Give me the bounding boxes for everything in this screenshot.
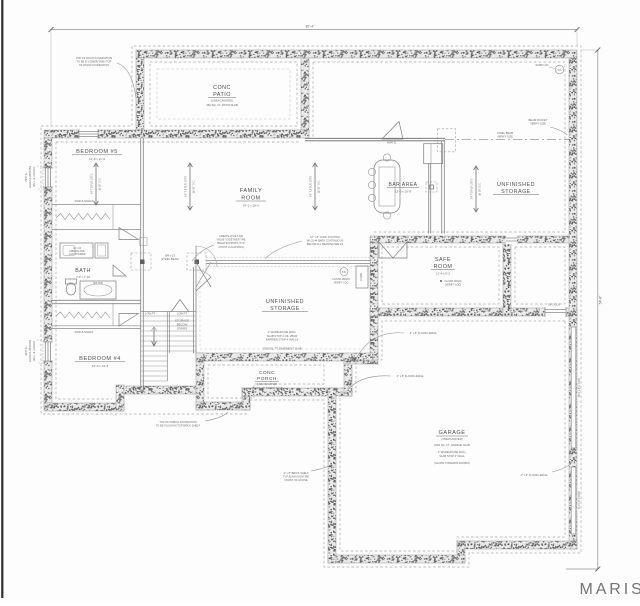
svg-text:4" x 8" FLOOR LEDGE: 4" x 8" FLOOR LEDGE <box>410 331 437 335</box>
svg-text:TO BE 8" LOWER THAN TOP: TO BE 8" LOWER THAN TOP <box>77 60 112 64</box>
svg-text:WELL & LADDER: WELL & LADDER <box>33 167 36 187</box>
svg-text:352 SQ. FT. PATIO SLAB: 352 SQ. FT. PATIO SLAB <box>206 103 238 107</box>
svg-text:STEEL BEAM: STEEL BEAM <box>161 257 179 261</box>
svg-text:STORAGE: STORAGE <box>175 319 190 323</box>
svg-text:2847 SL: 2847 SL <box>25 172 28 182</box>
svg-text:F.D.: F.D. <box>342 272 346 274</box>
svg-text:VERIFY SIZE: VERIFY SIZE <box>497 135 513 139</box>
svg-text:(VERIFY LOC): (VERIFY LOC) <box>445 283 462 286</box>
svg-text:ROOM: ROOM <box>241 196 260 202</box>
svg-text:82'-4": 82'-4" <box>306 25 315 29</box>
svg-text:SUMP LOC: SUMP LOC <box>535 64 548 67</box>
svg-text:FRONT OF HOUSE: FRONT OF HOUSE <box>284 478 307 482</box>
svg-text:TOP OF WOOD FOUNDATION: TOP OF WOOD FOUNDATION <box>76 56 112 60</box>
svg-text:4" x 8" FLOOR LEDGE: 4" x 8" FLOOR LEDGE <box>397 374 424 378</box>
svg-text:54'-8": 54'-8" <box>599 295 603 304</box>
svg-text:16" x 8" CONC FOOTING: 16" x 8" CONC FOOTING <box>310 235 340 239</box>
svg-text:16'-0 x 8'-0 OHD: 16'-0 x 8'-0 OHD <box>577 378 581 397</box>
svg-text:FLOOR DRAIN: FLOOR DRAIN <box>332 278 349 281</box>
svg-text:(UNEXCAVATED): (UNEXCAVATED) <box>441 437 462 441</box>
svg-text:MARIS: MARIS <box>580 581 640 598</box>
svg-text:VERIFY LOC: VERIFY LOC <box>334 281 349 284</box>
svg-text:@ 16" O.C.: @ 16" O.C. <box>316 180 320 193</box>
svg-text:FURN: FURN <box>359 273 363 281</box>
svg-text:PATIO: PATIO <box>213 92 231 98</box>
svg-text:MIT TUB: MIT TUB <box>93 282 103 285</box>
svg-text:BATH: BATH <box>75 268 90 274</box>
svg-text:BEDROOM #5: BEDROOM #5 <box>76 149 118 155</box>
svg-text:UNFINISHED: UNFINISHED <box>497 182 535 188</box>
svg-text:@ 16" O.C.: @ 16" O.C. <box>97 177 101 190</box>
svg-text:CONC: CONC <box>259 370 275 376</box>
svg-text:@ 16" O.C.: @ 16" O.C. <box>477 182 481 195</box>
svg-text:STAIRS: STAIRS <box>177 327 188 331</box>
svg-text:LOW PT: LOW PT <box>145 312 155 316</box>
svg-text:12'-0 x 13'-2: 12'-0 x 13'-2 <box>92 364 109 368</box>
svg-text:FAMILY: FAMILY <box>240 188 262 194</box>
svg-text:1094 SQ. FT. GARAGE SLAB: 1094 SQ. FT. GARAGE SLAB <box>434 443 470 447</box>
svg-text:24'-2 x 18'-0: 24'-2 x 18'-0 <box>243 204 260 208</box>
svg-text:12'-0 x 16'-8: 12'-0 x 16'-8 <box>395 190 412 194</box>
svg-text:BELOW: BELOW <box>177 323 188 327</box>
svg-text:14" TJI FLR JSTS: 14" TJI FLR JSTS <box>90 173 94 194</box>
svg-text:VERIFY SIZE: VERIFY SIZE <box>530 122 546 126</box>
svg-text:ROD & SHELF: ROD & SHELF <box>75 199 94 203</box>
svg-text:2358 SQ. FT. BASEMENT SLAB: 2358 SQ. FT. BASEMENT SLAB <box>263 347 302 351</box>
svg-text:4 POST LOCATIONS): 4 POST LOCATIONS) <box>218 245 244 249</box>
svg-text:SLAB STOP 4 OIL VBOR: SLAB STOP 4 OIL VBOR <box>267 334 297 338</box>
svg-text:PORCH: PORCH <box>257 376 277 382</box>
svg-text:4' WAREHOUSE WALL: 4' WAREHOUSE WALL <box>268 330 297 334</box>
svg-text:BELOW ALL BEARING WALLS: BELOW ALL BEARING WALLS <box>307 242 344 246</box>
svg-text:TO BE FLUSH W/ TOP BRICK SHELF: TO BE FLUSH W/ TOP BRICK SHELF <box>156 424 201 428</box>
svg-text:(UNEXCAVATED): (UNEXCAVATED) <box>257 382 278 386</box>
svg-text:7'-8 x 7'-10: 7'-8 x 7'-10 <box>76 275 91 279</box>
svg-text:@ 16" O.C.: @ 16" O.C. <box>191 180 195 193</box>
svg-text:CREATE QUIET AIR: CREATE QUIET AIR <box>219 234 243 238</box>
svg-text:STEEL BEAM: STEEL BEAM <box>497 131 513 135</box>
svg-text:2847 SL: 2847 SL <box>25 346 28 356</box>
svg-text:WELL & LADDER: WELL & LADDER <box>33 341 36 361</box>
svg-text:14" TJI FLR JSTS: 14" TJI FLR JSTS <box>470 178 474 199</box>
svg-text:9'-0 x 8'-0 OHD: 9'-0 x 8'-0 OHD <box>577 491 581 509</box>
svg-text:11'-4 x 9'-2: 11'-4 x 9'-2 <box>436 272 450 276</box>
svg-text:EGRESS WINDOW: EGRESS WINDOW <box>29 339 32 362</box>
svg-text:EGRESS WINDOW: EGRESS WINDOW <box>29 165 32 188</box>
svg-text:STORAGE: STORAGE <box>501 189 531 195</box>
svg-text:187 SQ. FT. PORCH SLAB: 187 SQ. FT. PORCH SLAB <box>251 386 283 390</box>
svg-text:BEAM POCKET: BEAM POCKET <box>529 118 548 122</box>
svg-text:4' WAREHOUSE WALL: 4' WAREHOUSE WALL <box>438 450 467 454</box>
svg-text:4" x 8" BRICK SHELF: 4" x 8" BRICK SHELF <box>283 471 309 475</box>
svg-text:ROOM: ROOM <box>434 264 453 270</box>
svg-text:BAR AREA: BAR AREA <box>388 182 417 188</box>
svg-text:BARRIER STOP 4' WALLS: BARRIER STOP 4' WALLS <box>266 338 299 342</box>
svg-text:(SLOPE TOWARDS DOORS): (SLOPE TOWARDS DOORS) <box>434 461 470 465</box>
svg-text:ROD & SHELF: ROD & SHELF <box>75 330 94 334</box>
svg-text:4" x 8" FLOOR LEDGE: 4" x 8" FLOOR LEDGE <box>521 473 548 477</box>
svg-text:BEDROOM #4: BEDROOM #4 <box>79 356 121 362</box>
svg-text:1 DR SHOWER: 1 DR SHOWER <box>69 253 86 256</box>
svg-text:VALVE TOGETHER THE: VALVE TOGETHER THE <box>217 238 246 242</box>
svg-text:FLOOR DRAIN: FLOOR DRAIN <box>444 280 461 283</box>
svg-text:TYP ALWAYS ENTIRE: TYP ALWAYS ENTIRE <box>283 475 309 479</box>
svg-text:S.P.: S.P. <box>557 70 561 72</box>
svg-text:14" TJI FLR JSTS: 14" TJI FLR JSTS <box>184 176 188 197</box>
svg-text:6040 SL: 6040 SL <box>387 141 397 145</box>
svg-text:12'-0 x 11'-6: 12'-0 x 11'-6 <box>89 157 105 161</box>
svg-text:GARAGE: GARAGE <box>439 430 466 436</box>
svg-text:TOP OF PORCH FOUNDATION: TOP OF PORCH FOUNDATION <box>159 420 196 424</box>
svg-text:16'-2 CLG: 16'-2 CLG <box>548 303 560 307</box>
svg-text:UNFINISHED: UNFINISHED <box>266 299 304 305</box>
svg-text:SAFE: SAFE <box>435 257 451 263</box>
svg-text:W/ (2) #4 BARS CONTINUOUS: W/ (2) #4 BARS CONTINUOUS <box>307 239 344 243</box>
svg-text:CONC: CONC <box>213 85 231 91</box>
svg-text:14" TJI FLR JSTS: 14" TJI FLR JSTS <box>309 176 313 197</box>
svg-text:LOW PT: LOW PT <box>177 312 187 316</box>
svg-text:STORAGE: STORAGE <box>270 306 300 312</box>
svg-text:BEAM SUPPORT (TYP: BEAM SUPPORT (TYP <box>217 241 244 245</box>
svg-text:SLAB STOP 4' WALL: SLAB STOP 4' WALL <box>439 454 465 458</box>
svg-text:(UNEXCAVATED): (UNEXCAVATED) <box>211 99 233 103</box>
svg-text:OF WOOD FOUNDATION: OF WOOD FOUNDATION <box>79 63 109 67</box>
